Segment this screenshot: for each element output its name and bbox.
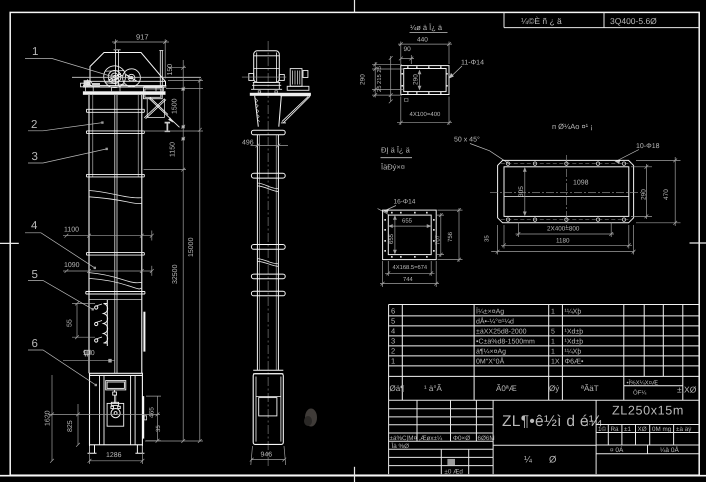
svg-text:ŌF¼: ŌF¼ — [633, 390, 647, 397]
svg-text:744: 744 — [403, 277, 413, 283]
svg-text:305: 305 — [518, 186, 525, 197]
svg-text:3: 3 — [391, 337, 395, 346]
svg-text:1500: 1500 — [172, 98, 179, 114]
svg-text:655: 655 — [388, 233, 395, 244]
svg-text:ªÃäT: ªÃäT — [581, 383, 599, 393]
svg-text:Øä¶: Øä¶ — [390, 384, 405, 393]
svg-text:1090: 1090 — [64, 262, 80, 269]
svg-text:4X100=400: 4X100=400 — [410, 111, 442, 118]
svg-text:Φ0×Ø: Φ0×Ø — [453, 435, 470, 442]
svg-text:ĐĮ ä Ī¿ ä: ĐĮ ä Ī¿ ä — [381, 146, 411, 155]
svg-text:1: 1 — [391, 357, 395, 366]
svg-text:¡.¡: ¡.¡ — [586, 418, 594, 427]
svg-text:¼ä 0Å: ¼ä 0Å — [660, 446, 679, 454]
svg-text:465: 465 — [149, 407, 156, 418]
svg-text:ä¶¼×¤Ag: ä¶¼×¤Ag — [476, 349, 506, 356]
svg-text:1: 1 — [551, 349, 555, 356]
svg-text:32500: 32500 — [172, 264, 179, 284]
svg-text:¹¼Xþ: ¹¼Xþ — [565, 308, 582, 316]
svg-text:4: 4 — [31, 220, 38, 232]
svg-text:1100: 1100 — [64, 227, 79, 234]
svg-text:35: 35 — [484, 235, 491, 242]
svg-text:290: 290 — [413, 74, 420, 85]
svg-text:1150: 1150 — [170, 142, 177, 157]
svg-text:Rä: Rä — [611, 426, 620, 433]
svg-text:¹ ä°Ã: ¹ ä°Ã — [424, 383, 443, 393]
svg-text:15000: 15000 — [188, 237, 195, 257]
svg-text:917: 917 — [136, 33, 149, 42]
svg-text:756: 756 — [447, 231, 454, 242]
svg-text:¼: ¼ — [524, 455, 533, 466]
svg-text:Īä %Ø: Īä %Ø — [392, 442, 410, 450]
svg-text:±äXX25d8-2000: ±äXX25d8-2000 — [476, 328, 527, 336]
svg-text:55: 55 — [67, 319, 74, 327]
svg-text:0M"X°0Å: 0M"X°0Å — [476, 357, 505, 366]
svg-text:1180: 1180 — [556, 237, 570, 244]
svg-text:290: 290 — [360, 74, 367, 85]
svg-text:±ä%C|M¤: ±ä%C|M¤ — [390, 435, 418, 442]
svg-text:1X: 1X — [551, 359, 560, 366]
svg-text:4: 4 — [391, 327, 395, 336]
svg-text:1620: 1620 — [45, 410, 52, 426]
svg-text:290: 290 — [641, 189, 648, 200]
svg-text:2: 2 — [391, 347, 395, 356]
svg-text:2: 2 — [31, 119, 37, 131]
svg-text:п Ø¼Ao ¤¹ ¡: п Ø¼Ao ¤¹ ¡ — [552, 122, 593, 131]
svg-text:0M mg: 0M mg — [652, 426, 672, 433]
svg-text:50 x 45°: 50 x 45° — [454, 137, 480, 144]
svg-text:707: 707 — [435, 234, 442, 245]
svg-text:±,XØ: ±,XØ — [677, 385, 697, 395]
svg-text:1: 1 — [32, 46, 38, 58]
svg-text:Ø: Ø — [549, 455, 557, 466]
svg-text:ĪäĐý×¤: ĪäĐý×¤ — [381, 163, 405, 172]
svg-text:dÅ•-¼°¤¹¼d: dÅ•-¼°¤¹¼d — [476, 317, 514, 326]
svg-text:90: 90 — [404, 46, 412, 53]
svg-text:470: 470 — [663, 189, 670, 200]
svg-text:XØ: XØ — [638, 426, 647, 433]
svg-text:1: 1 — [551, 339, 555, 346]
svg-text:440: 440 — [417, 37, 428, 44]
svg-text:5: 5 — [391, 317, 395, 326]
svg-text:5: 5 — [551, 329, 555, 336]
svg-text:1: 1 — [551, 309, 555, 316]
svg-text:1286: 1286 — [106, 452, 122, 459]
svg-text:5: 5 — [32, 269, 38, 281]
svg-text:3Q400-5.6Ø: 3Q400-5.6Ø — [610, 16, 657, 26]
svg-text:±1: ±1 — [624, 426, 631, 433]
svg-text:6: 6 — [32, 338, 38, 350]
svg-text:10-Φ18: 10-Φ18 — [636, 143, 660, 150]
svg-text:¤ 0Á: ¤ 0Á — [610, 446, 624, 454]
svg-text:2X400=800: 2X400=800 — [547, 226, 580, 233]
svg-text:¹Xd±þ: ¹Xd±þ — [565, 338, 584, 346]
svg-text:16-Φ14: 16-Φ14 — [394, 199, 416, 206]
svg-text:Ī¼±×¤Ag: Ī¼±×¤Ag — [476, 308, 504, 316]
svg-text:35: 35 — [155, 425, 162, 432]
svg-text:655: 655 — [402, 218, 413, 225]
svg-text:3: 3 — [32, 151, 38, 163]
svg-text:900: 900 — [83, 350, 95, 357]
svg-text:825: 825 — [67, 420, 74, 432]
svg-text:6: 6 — [391, 307, 395, 316]
svg-text:Φ6Æ•: Φ6Æ• — [565, 359, 584, 366]
svg-text:•C±ä%d8-1500mm: •C±ä%d8-1500mm — [476, 338, 535, 346]
svg-text:Ã0ªÆ: Ã0ªÆ — [496, 383, 517, 393]
svg-text:¼ø ä Ī¿ ä: ¼ø ä Ī¿ ä — [410, 23, 443, 32]
svg-text:ZL250x15m: ZL250x15m — [612, 404, 684, 418]
svg-text:Øý: Øý — [549, 384, 559, 393]
svg-text:±ä äÿ: ±ä äÿ — [676, 426, 692, 433]
svg-text:150: 150 — [167, 64, 174, 76]
svg-text:946: 946 — [261, 452, 273, 459]
svg-text:¼©È ñ ¿ ä: ¼©È ñ ¿ ä — [521, 16, 562, 26]
svg-text:1098: 1098 — [573, 180, 589, 187]
svg-text:¹¼Xþ: ¹¼Xþ — [565, 348, 582, 356]
svg-text:,Æøx±¼: ,Æøx±¼ — [419, 435, 443, 442]
svg-text:6Ø6M: 6Ø6M — [478, 435, 495, 442]
svg-text:1©: 1© — [598, 426, 607, 433]
svg-text:¹Xd±þ: ¹Xd±þ — [565, 328, 584, 336]
svg-text:4X168.5=674: 4X168.5=674 — [393, 264, 428, 271]
svg-text:11-Φ14: 11-Φ14 — [461, 60, 484, 67]
svg-text:±0 Æd: ±0 Æd — [444, 468, 463, 475]
svg-text:•Ī%X¼X¤Æ: •Ī%X¼X¤Æ — [627, 380, 658, 387]
svg-text:25 215 25: 25 215 25 — [376, 66, 383, 92]
